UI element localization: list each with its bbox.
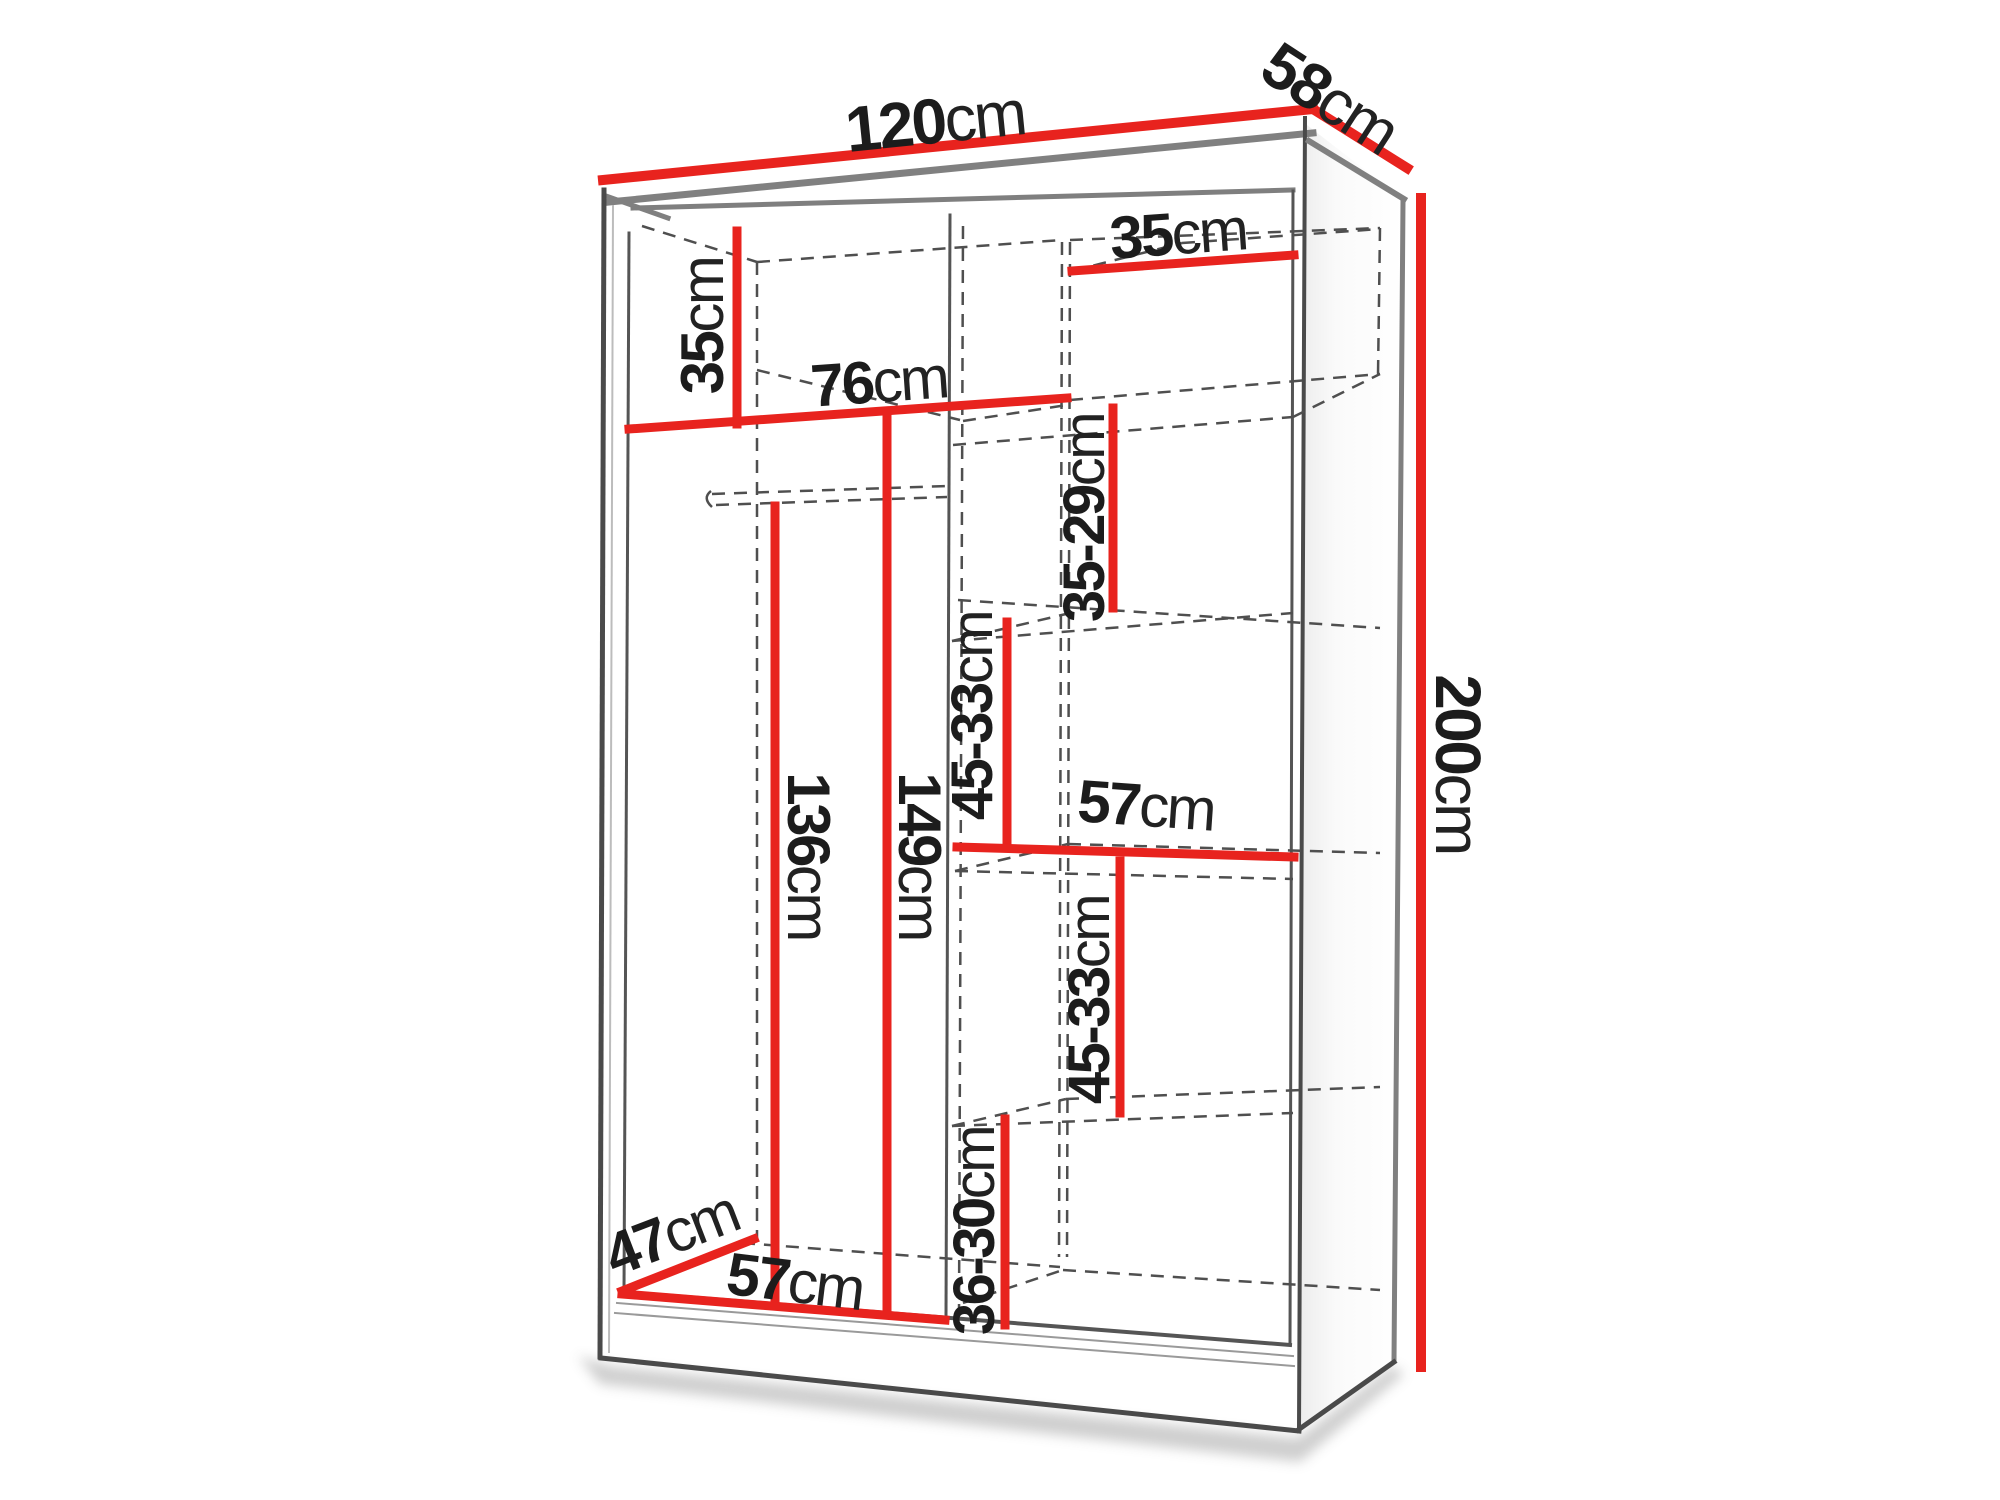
hanging-rail-front [712, 486, 947, 494]
dim-label-height-side: 200cm [1422, 674, 1494, 854]
dim-label-top-shelf-width: 76cm [808, 343, 949, 419]
shelf0-front-edge [953, 417, 1293, 445]
dim-label-middle-shelf-width: 57cm [1075, 767, 1216, 843]
right-inner-edge [1290, 191, 1293, 1344]
dim-label-bottom-width: 57cm [723, 1239, 867, 1322]
floor-shadow [578, 1356, 1404, 1462]
dim-label-top-right-width: 35cm [1107, 195, 1248, 271]
dim-line-middle-shelf-width [957, 847, 1294, 857]
dim-label-top-left-height: 35cm [669, 258, 736, 395]
ceiling-back-edge-left [757, 240, 1062, 262]
hanging-rail-end-cap [707, 491, 712, 507]
side-panel [1299, 125, 1404, 1429]
dim-label-upper-right-height: 35-29cm [1052, 414, 1117, 622]
wardrobe-dimension-diagram: 120cm 58cm 200cm 35cm 76cm 35cm 35-29cm … [0, 0, 2000, 1500]
left-outer-edge [600, 190, 604, 1357]
dim-label-bottom-right-height: 36-30cm [942, 1127, 1007, 1335]
diagram-canvas: 120cm 58cm 200cm 35cm 76cm 35cm 35-29cm … [0, 0, 2000, 1500]
dim-label-mid-right-height-b: 45-33cm [1057, 896, 1122, 1104]
dim-label-width-top: 120cm [842, 76, 1028, 166]
left-inner-edge [624, 233, 629, 1292]
dim-label-left-interior-height: 149cm [887, 772, 954, 940]
left-edge-highlight [609, 206, 613, 1352]
hanging-rail-back [716, 497, 947, 505]
dim-label-hanging-height: 136cm [776, 772, 843, 940]
